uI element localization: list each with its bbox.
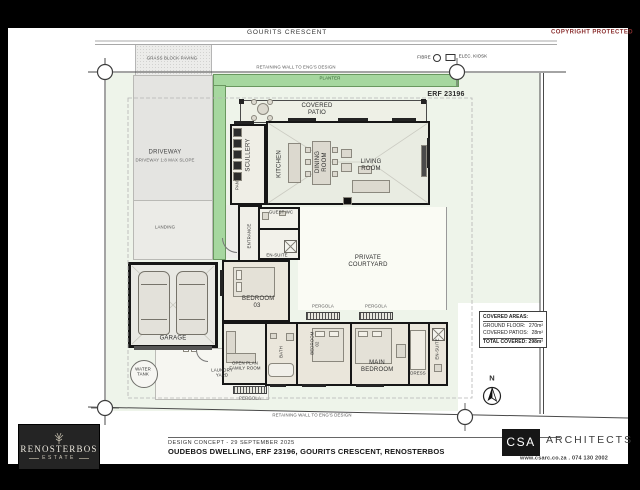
pillow (372, 331, 382, 337)
north-arrow-icon (484, 388, 501, 405)
garage-label: GARAGE (160, 335, 187, 342)
estate-subtitle-row: ESTATE (29, 455, 89, 461)
areas-row-value: 270m² (529, 323, 543, 330)
window-marker (234, 121, 254, 124)
kitchen-label: KITCHEN (276, 150, 283, 178)
survey-marker (98, 401, 113, 416)
areas-table-row: COVERED PATIOS: 28m² (483, 330, 543, 337)
dining-chair (332, 147, 338, 153)
pergola-strip (359, 312, 393, 320)
pergola-strip (233, 386, 267, 394)
main-bedroom-label: MAIN BEDROOM (361, 360, 393, 374)
pillow (236, 270, 242, 280)
laundry-yard-label: LAUNDRY YARD (210, 369, 233, 379)
legend-fibre-label: FIBRE (417, 55, 430, 60)
sofa (352, 180, 390, 193)
living-room-label: LIVING ROOM (358, 159, 384, 173)
areas-row-label: COVERED PATIOS: (483, 330, 528, 337)
window-marker (427, 138, 430, 168)
covered-patio-label: COVERED PATIO (295, 103, 339, 117)
areas-row-value: 28m² (532, 330, 543, 337)
dining-room-label: DINING ROOM (315, 147, 329, 177)
decorative-rule (79, 458, 89, 459)
retaining-wall-top-label: RETAINING WALL TO ENG'S DESIGN (256, 65, 335, 70)
street-label: GOURITS CRESCENT (247, 29, 327, 37)
garage-door-marker (134, 346, 212, 350)
erf-boundary-right (540, 73, 544, 414)
areas-table-row: GROUND FLOOR: 270m² (483, 323, 543, 330)
entrance-label: ENTRANCE (247, 224, 252, 249)
dining-chair (305, 147, 311, 153)
areas-table-title: COVERED AREAS: (483, 314, 543, 322)
armchair (341, 163, 352, 172)
estate-subtitle: ESTATE (42, 455, 76, 461)
legend-elec-label: ELEC. KIOSK (459, 54, 487, 59)
courtyard-label: PRIVATE COURTYARD (345, 255, 391, 269)
window-marker (302, 384, 326, 387)
wardrobe (410, 330, 426, 370)
plant-emblem-icon (52, 433, 66, 444)
architect-firm-name: ARCHITECTS (546, 434, 633, 446)
patio-column (421, 99, 426, 104)
appliance (233, 161, 242, 170)
pergola-label: PERGOLA (365, 304, 387, 309)
planter-label: PLANTER (320, 76, 341, 81)
erf-boundary-bottom (88, 407, 628, 418)
window-marker (288, 118, 316, 121)
car (138, 271, 170, 335)
decorative-rule (29, 458, 39, 459)
appliance (233, 128, 242, 137)
survey-marker (98, 65, 113, 80)
bedroom-02-label: BEDROOM 02 (311, 333, 321, 355)
pantry-label: PANTRY (235, 172, 240, 190)
bedroom-03-label: BEDROOM 03 (242, 296, 272, 310)
project-title: OUDEBOS DWELLING, ERF 23196, GOURITS CRE… (168, 447, 445, 456)
shower (284, 240, 297, 253)
estate-name: RENOSTERBOS (20, 444, 97, 454)
road-edge-lines (95, 41, 557, 45)
patio-chair (267, 99, 273, 105)
pillow (236, 282, 242, 292)
driveway-label: DRIVEWAY (149, 149, 182, 156)
toilet (286, 333, 294, 341)
retaining-wall-bottom-label: RETAINING WALL TO ENG'S DESIGN (272, 413, 351, 418)
family-room-label: OPEN PLAN FAMILY ROOM (229, 362, 261, 372)
guest-wc-label: GUEST WC (269, 210, 293, 215)
drawing-canvas: GOURITS CRESCENT COPYRIGHT PROTECTED FIB… (0, 0, 640, 490)
toilet (434, 364, 442, 372)
grass-paving-label: GRASS BLOCK PAVING (147, 56, 197, 61)
landing-label: LANDING (155, 225, 175, 230)
pillow (358, 331, 368, 337)
erf-label: ERF 23196 (427, 91, 464, 99)
ensuite-main-label: EN-SUITE (435, 338, 440, 359)
fibre-marker-icon (434, 55, 441, 62)
survey-marker (450, 65, 465, 80)
armchair (341, 149, 352, 158)
scullery-label: SCULLERY (245, 138, 252, 171)
appliance (233, 139, 242, 148)
elec-kiosk-marker-icon (446, 55, 455, 61)
basin (270, 333, 277, 339)
fireplace (343, 197, 352, 205)
dining-chair (305, 159, 311, 165)
pergola-label: PERGOLA (239, 396, 261, 401)
bathtub (268, 363, 294, 377)
architect-logo-mark: CSA (502, 429, 540, 456)
appliance (233, 150, 242, 159)
copyright-label: COPYRIGHT PROTECTED (551, 29, 633, 36)
areas-table-total: TOTAL COVERED: 298m² (483, 338, 543, 346)
pergola-label: PERGOLA (312, 304, 334, 309)
water-tank-label: WATER TANK (134, 368, 151, 378)
areas-total-value: 298m² (529, 339, 543, 346)
pergola-strip (306, 312, 340, 320)
desk (396, 344, 406, 358)
window-marker (270, 384, 286, 387)
patio-column (239, 99, 244, 104)
dining-chair (332, 171, 338, 177)
architect-contact: www.csarc.co.za . 074 130 2002 (520, 456, 608, 463)
patio-chair (267, 115, 273, 121)
car (176, 271, 208, 335)
driveway-note-label: DRIVEWAY 1:8 MAX SLOPE (135, 158, 194, 163)
areas-table: COVERED AREAS: GROUND FLOOR: 270m² COVER… (479, 311, 547, 348)
survey-marker (458, 410, 473, 425)
areas-row-label: GROUND FLOOR: (483, 323, 525, 330)
window-marker (338, 118, 368, 121)
estate-logo: RENOSTERBOS ESTATE (18, 424, 100, 470)
north-label: N (489, 374, 495, 383)
bath-label: BATH (279, 346, 284, 358)
kitchen-island (288, 143, 301, 183)
pillow (329, 331, 339, 337)
window-marker (392, 118, 416, 121)
patio-chair (251, 99, 257, 105)
concept-line: DESIGN CONCEPT - 29 SEPTEMBER 2025 (168, 440, 295, 446)
patio-table (257, 103, 269, 115)
dining-chair (332, 159, 338, 165)
areas-total-label: TOTAL COVERED: (483, 339, 527, 346)
dining-chair (305, 171, 311, 177)
dress-label: DRESS (410, 371, 426, 376)
ensuite-bed3-label: EN-SUITE (266, 253, 287, 258)
window-marker (220, 270, 223, 296)
window-marker (356, 384, 384, 387)
